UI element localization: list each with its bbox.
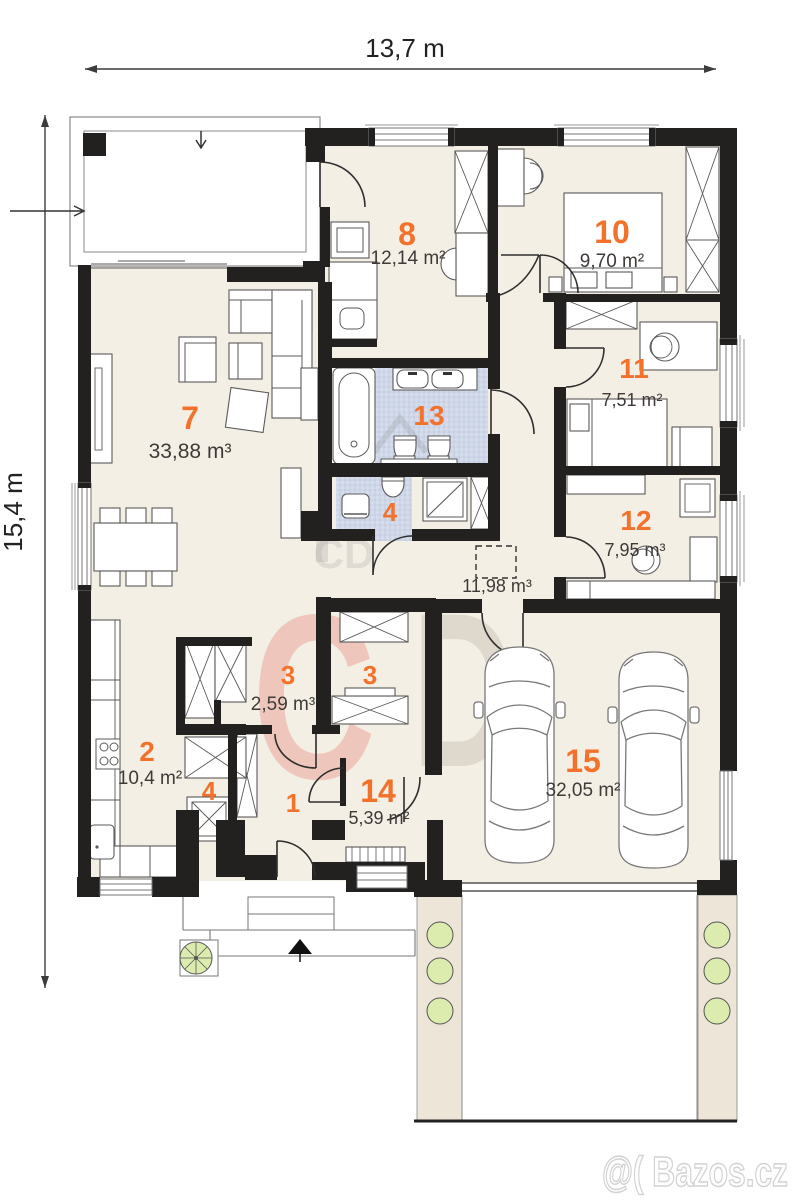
svg-text:15: 15 bbox=[565, 743, 601, 779]
svg-text:8: 8 bbox=[398, 216, 416, 252]
svg-text:33,88 m³: 33,88 m³ bbox=[149, 440, 232, 463]
svg-text:9,70 m²: 9,70 m² bbox=[580, 251, 644, 272]
svg-text:32,05 m²: 32,05 m² bbox=[546, 780, 621, 801]
svg-text:4: 4 bbox=[383, 497, 398, 527]
svg-text:7,95 m³: 7,95 m³ bbox=[604, 540, 665, 560]
svg-text:2: 2 bbox=[139, 736, 155, 767]
svg-text:@( Bazos.cz: @( Bazos.cz bbox=[602, 1148, 788, 1195]
svg-text:15,4 m: 15,4 m bbox=[0, 472, 28, 552]
svg-text:5,39 m²: 5,39 m² bbox=[348, 808, 409, 828]
svg-text:10: 10 bbox=[594, 214, 630, 250]
svg-text:13: 13 bbox=[413, 400, 444, 431]
svg-text:4: 4 bbox=[202, 776, 217, 806]
svg-text:11: 11 bbox=[619, 353, 649, 384]
svg-text:12: 12 bbox=[620, 505, 651, 536]
svg-text:12,14 m²: 12,14 m² bbox=[371, 248, 446, 269]
svg-text:13,7 m: 13,7 m bbox=[365, 33, 445, 63]
svg-text:10,4 m²: 10,4 m² bbox=[118, 768, 182, 789]
svg-text:7: 7 bbox=[181, 400, 199, 436]
svg-text:3: 3 bbox=[281, 660, 295, 690]
svg-text:14: 14 bbox=[360, 773, 396, 809]
svg-text:1: 1 bbox=[286, 788, 300, 818]
svg-text:11,98 m³: 11,98 m³ bbox=[462, 576, 532, 596]
svg-text:2,59 m³: 2,59 m³ bbox=[251, 694, 315, 715]
svg-text:3: 3 bbox=[363, 660, 377, 690]
svg-text:7,51 m²: 7,51 m² bbox=[601, 390, 662, 410]
